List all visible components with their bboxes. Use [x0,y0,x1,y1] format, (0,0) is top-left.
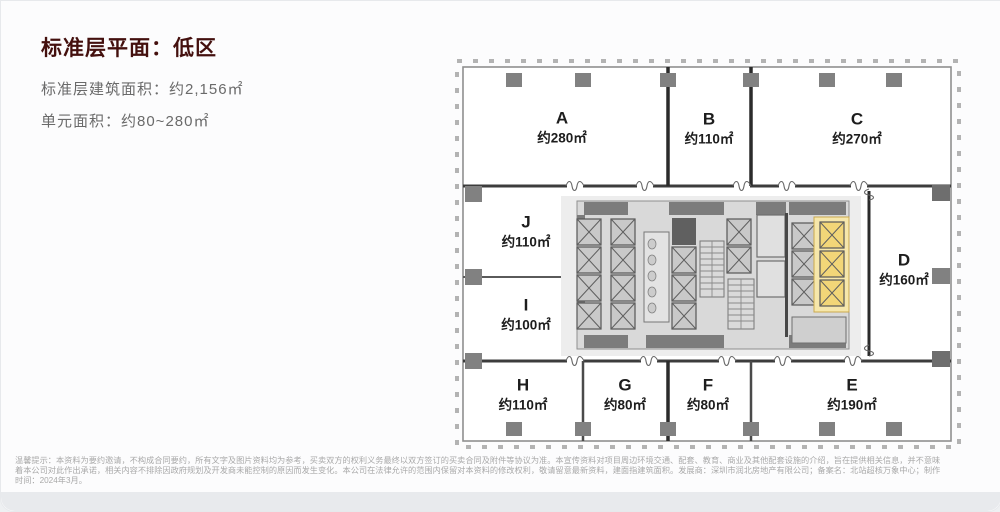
disclaimer-line-3: 时间：2024年3月。 [15,476,991,486]
highlighted-elevator-bank [814,217,849,312]
restroom [644,232,669,322]
slide: 标准层平面：低区 标准层建筑面积：约2,156㎡ 单元面积：约80~280㎡ [0,0,1000,512]
disclaimer: 温馨提示：本资料为要约邀请，不构成合同要约，所有文字及图片资料均为参考，买卖双方… [15,456,991,490]
disclaimer-line-2: 着本公司对此作出承诺，相关内容不排除因政府规划及开发商未能控制的原因而发生变化。… [15,466,991,476]
equipment-room [672,218,696,245]
bottom-bar [1,492,1000,511]
floor-plan-graphic [1,1,1000,511]
core [561,196,861,356]
disclaimer-line-1: 温馨提示：本资料为要约邀请，不构成合同要约，所有文字及图片资料均为参考，买卖双方… [15,456,991,466]
